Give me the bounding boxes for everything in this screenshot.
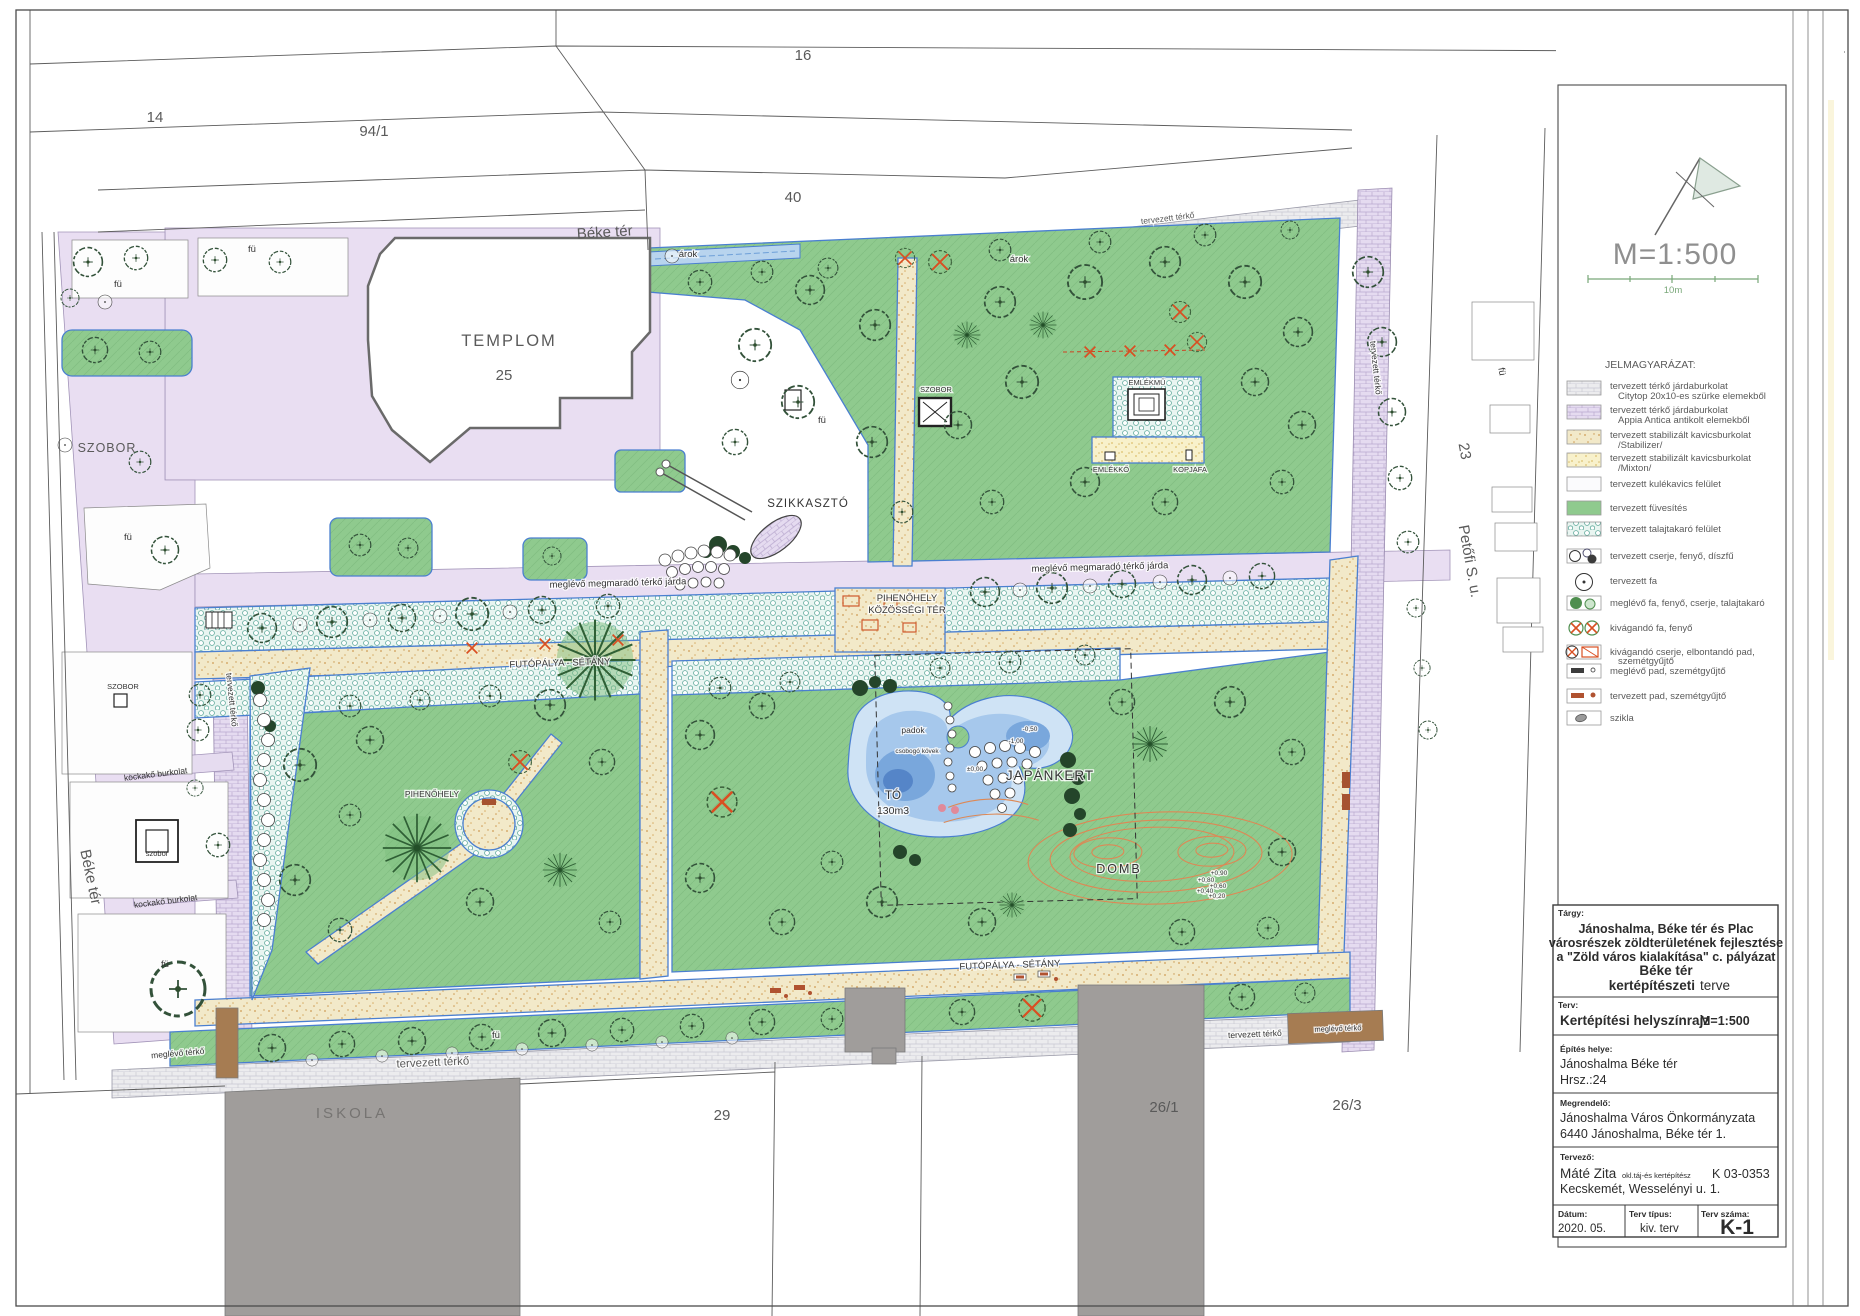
label-to: TÓ	[885, 789, 901, 802]
parcel-16: 16	[795, 47, 812, 64]
parcel-14: 14	[147, 109, 164, 126]
parcel-25: 25	[496, 367, 513, 384]
label-fu-4: fü	[818, 415, 826, 426]
site-plan-sheet: 14 94/1 16 40 Béke tér árok árok terveze…	[0, 0, 1860, 1316]
label-templom: TEMPLOM	[461, 332, 557, 350]
megrendelo-label: Megrendelő:	[1560, 1098, 1611, 1108]
legend-item-label2: /Mixton/	[1618, 463, 1652, 474]
label-csobogo-kovek: csobogó kövek	[895, 748, 939, 755]
label-arok-2: árok	[1010, 254, 1029, 265]
parcel-23: 23	[1455, 442, 1475, 461]
legend-title: JELMAGYARÁZAT:	[1605, 358, 1696, 371]
label-lvl-m050: -0,50	[1023, 726, 1038, 733]
title-block: Tárgy: Jánoshalma, Béke tér és Plac váro…	[1549, 905, 1783, 1239]
targy-line5-reg: terve	[1700, 978, 1730, 993]
legend-item-label: tervezett talajtakaró felület	[1610, 524, 1721, 535]
tervezo-label: Tervező:	[1560, 1152, 1594, 1162]
label-arok-1: árok	[679, 249, 698, 260]
targy-line2: városrészek zöldterületének fejlesztése	[1549, 936, 1783, 950]
street-beke-ter-top: Béke tér	[576, 222, 633, 242]
legend-item-label: tervezett pad, szemétgyűjtő	[1610, 691, 1726, 702]
tervezo-line2: Kecskemét, Wesselényi u. 1.	[1560, 1182, 1720, 1196]
legend-item-label2: Citytop 20x10-es szürke elemekből	[1618, 391, 1766, 402]
label-pihenohely-plaza: PIHENŐHELY	[405, 789, 459, 799]
label-pihenohely-kozossegi-1: PIHENŐHELY	[877, 593, 938, 604]
label-pihenohely-kozossegi-2: KÖZÖSSÉGI TÉR	[868, 605, 946, 616]
epites-line2: Hrsz.:24	[1560, 1073, 1607, 1087]
legend-item-label: tervezett cserje, fenyő, díszfű	[1610, 551, 1734, 562]
datum-label: Dátum:	[1558, 1209, 1587, 1219]
parcel-29: 29	[714, 1107, 731, 1124]
label-fu-3: fü	[124, 532, 132, 543]
parcel-94-1: 94/1	[359, 123, 388, 140]
label-szobor-small2: SZOBOR	[107, 682, 139, 691]
targy-line5-bold: kertépítészeti	[1609, 978, 1695, 993]
megrendelo-line1: Jánoshalma Város Önkormányzata	[1560, 1111, 1755, 1125]
epites-line1: Jánoshalma Béke tér	[1560, 1057, 1677, 1071]
label-padok: padok	[901, 725, 925, 735]
tipus-label: Terv típus:	[1629, 1209, 1672, 1219]
scale-text: M=1:500	[1613, 238, 1738, 271]
label-emlekmu: EMLÉKMŰ	[1128, 378, 1165, 387]
targy-line1: Jánoshalma, Béke tér és Plac	[1578, 922, 1753, 936]
szama-value: K-1	[1720, 1216, 1754, 1239]
tervezo-reg: K 03-0353	[1712, 1167, 1770, 1181]
label-fu-6: fü	[492, 1030, 500, 1041]
label-iskola: ISKOLA	[316, 1105, 388, 1122]
epites-label: Építés helye:	[1560, 1044, 1613, 1054]
tervezo-name: Máté Zita	[1560, 1166, 1617, 1181]
targy-line4: Béke tér	[1639, 963, 1693, 978]
label-japankert: JAPÁNKERT	[1006, 768, 1094, 783]
legend-item-label: kivágandó fa, fenyő	[1610, 623, 1692, 634]
tervezo-title: okl.táj-és kertépítész	[1622, 1171, 1691, 1180]
targy-label: Tárgy:	[1558, 908, 1584, 918]
label-szobor-park: SZOBOR	[920, 385, 952, 394]
scale-bar-label: 10m	[1664, 285, 1683, 296]
label-kopjafa: KOPJAFA	[1173, 465, 1207, 474]
label-fu-2: fü	[248, 244, 256, 255]
label-szikkaszto: SZIKKASZTÓ	[767, 497, 849, 510]
targy-line3: a "Zöld város kialakítása" c. pályázat	[1557, 950, 1777, 964]
legend-item-label: meglévő fa, fenyő, cserje, talajtakaró	[1610, 598, 1765, 609]
legend-item-label: tervezett fa	[1610, 576, 1658, 587]
terv-value: Kertépítési helyszínrajz	[1560, 1013, 1710, 1028]
label-to-volume: 130m3	[877, 805, 909, 817]
parcel-26-1: 26/1	[1149, 1099, 1178, 1116]
legend-item-label: tervezett füvesítés	[1610, 503, 1687, 514]
label-fu-5: fü	[161, 959, 169, 970]
legend-item-label: meglévő pad, szemétgyűjtő	[1610, 666, 1726, 677]
label-lvl-p020: +0,20	[1209, 893, 1226, 900]
label-szobor-big: SZOBOR	[78, 441, 137, 455]
datum-value: 2020. 05.	[1558, 1223, 1606, 1235]
tipus-value: kiv. terv	[1640, 1223, 1679, 1235]
terv-scale: M=1:500	[1700, 1014, 1750, 1028]
label-lvl-p090: +0,90	[1211, 870, 1228, 877]
legend-item-label2: /Stabilizer/	[1618, 440, 1663, 451]
label-lvl-m100: -1,00	[1009, 738, 1024, 745]
terv-label: Terv:	[1558, 1000, 1578, 1010]
label-meglevo-terko-2: meglévő térkő	[1314, 1023, 1361, 1034]
legend-item-label: tervezett kulékavics felület	[1610, 479, 1721, 490]
label-emlekko: EMLÉKKŐ	[1093, 465, 1129, 474]
legend-item-label2: Appia Antica antikolt elemekből	[1618, 415, 1750, 426]
label-fu-1: fü	[114, 279, 122, 290]
parcel-40: 40	[785, 189, 802, 206]
parcel-26-3: 26/3	[1332, 1097, 1361, 1114]
label-lvl-zero: ±0,00	[967, 766, 984, 773]
megrendelo-line2: 6440 Jánoshalma, Béke tér 1.	[1560, 1127, 1726, 1141]
label-domb: DOMB	[1096, 862, 1142, 876]
label-szobor-small: szobor	[146, 849, 169, 858]
legend-item-label: szikla	[1610, 713, 1634, 724]
